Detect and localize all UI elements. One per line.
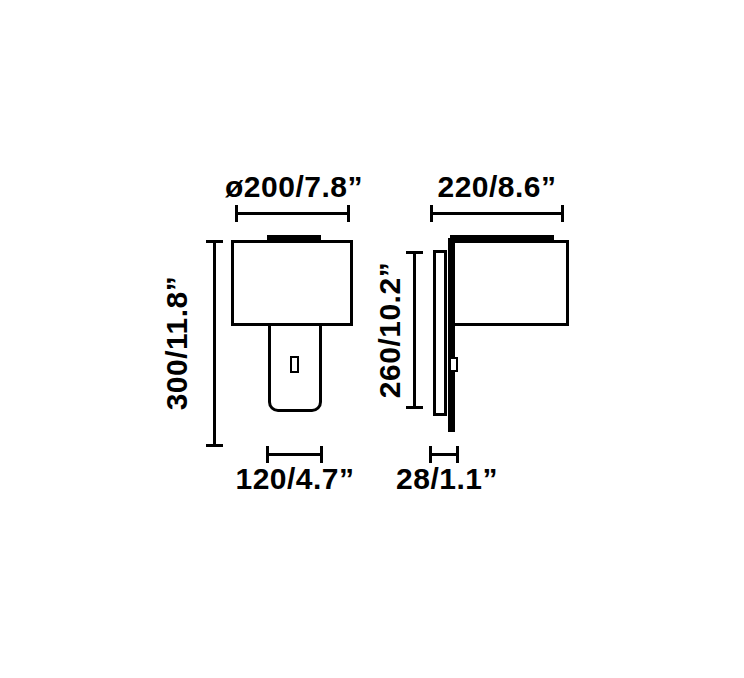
dimension-tick (429, 446, 432, 463)
overall-height-label: 300/11.8” (160, 243, 194, 443)
wall-plate-side (433, 250, 447, 416)
wall-bracket-depth-label: 28/1.1” (347, 462, 547, 496)
dimension-tick (266, 446, 269, 463)
dimension-tick (456, 446, 459, 463)
dimension-tick (430, 205, 433, 222)
shade-diameter-label: ø200/7.8” (194, 170, 394, 204)
back-height-label: 260/10.2” (373, 230, 407, 430)
overall-depth-label: 220/8.6” (397, 170, 597, 204)
dimension-line-body-width (267, 453, 323, 456)
dimension-tick (561, 205, 564, 222)
shade-top-cap-side (450, 235, 554, 243)
dimension-line-back-height (413, 252, 416, 409)
dimension-tick (206, 240, 223, 243)
dimension-line-shade-diameter (236, 212, 349, 215)
wall-lamp-dimension-diagram: ø200/7.8” 300/11.8” 120/4.7” 220/8.6” 2 (0, 0, 744, 678)
lamp-shade-front (231, 240, 353, 326)
dimension-line-wall-bracket-depth (430, 453, 458, 456)
dimension-tick (235, 205, 238, 222)
dimension-line-overall-height (213, 241, 216, 446)
shade-top-cap-front (267, 235, 321, 243)
dimension-tick (347, 205, 350, 222)
switch-front (290, 356, 299, 373)
dimension-tick (406, 406, 423, 409)
dimension-tick (406, 251, 423, 254)
dimension-line-overall-depth (431, 212, 563, 215)
dimension-tick (320, 446, 323, 463)
lamp-shade-side (452, 240, 569, 326)
dimension-tick (206, 444, 223, 447)
switch-side (449, 357, 458, 372)
